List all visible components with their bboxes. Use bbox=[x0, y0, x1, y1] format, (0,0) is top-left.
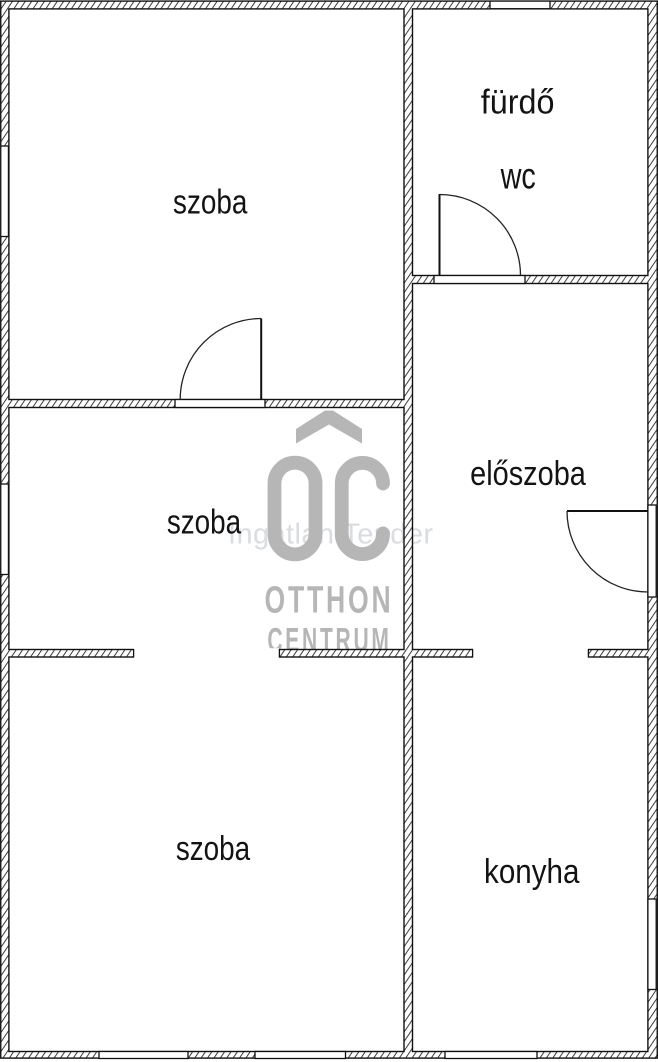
svg-text:OTTHON: OTTHON bbox=[264, 578, 393, 621]
svg-text:Ingatlan Tender: Ingatlan Tender bbox=[228, 519, 433, 551]
svg-text:szoba: szoba bbox=[176, 829, 251, 867]
svg-text:fürdő: fürdő bbox=[481, 84, 555, 122]
svg-text:wc: wc bbox=[500, 156, 536, 197]
svg-text:előszoba: előszoba bbox=[470, 454, 586, 493]
svg-text:szoba: szoba bbox=[167, 503, 242, 541]
svg-text:szoba: szoba bbox=[173, 183, 248, 221]
svg-text:konyha: konyha bbox=[484, 852, 580, 890]
